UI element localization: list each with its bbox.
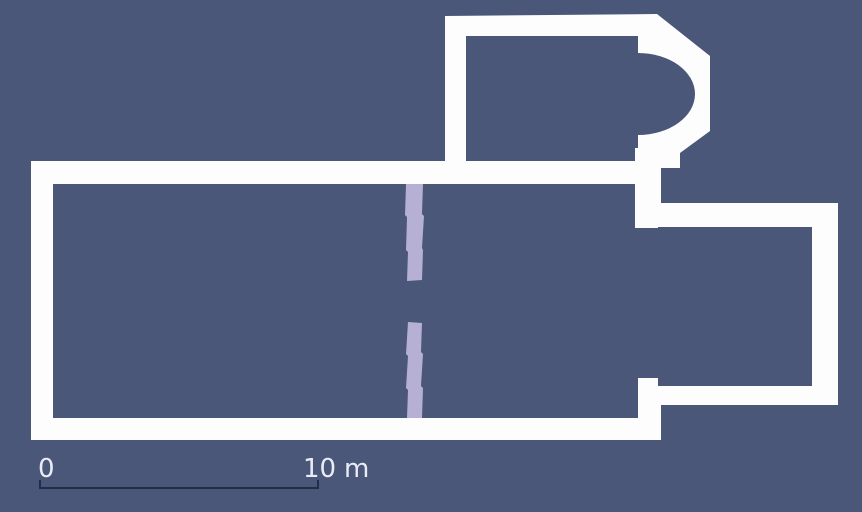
east-annex-east-wall <box>812 203 838 405</box>
scale-bar-unit-label: m <box>344 454 369 484</box>
partition-wall-upper <box>405 184 424 281</box>
east-annex-north-wall <box>635 203 838 227</box>
east-annex-interior <box>658 227 812 386</box>
scale-bar-start-label: 0 <box>38 454 55 484</box>
floor-plan-drawing: 0 10 m <box>0 0 862 512</box>
partition-wall-lower <box>406 322 423 418</box>
north-annex-interior <box>466 36 638 161</box>
scale-bar-end-label: 10 <box>303 454 336 484</box>
main-hall-west-wall <box>31 161 53 440</box>
main-hall-interior <box>53 184 635 418</box>
main-hall-north-wall <box>31 161 637 184</box>
east-annex-south-wall <box>658 386 838 405</box>
floor-plan-viewport: 0 10 m <box>0 0 862 512</box>
main-hall-south-wall <box>31 418 661 440</box>
